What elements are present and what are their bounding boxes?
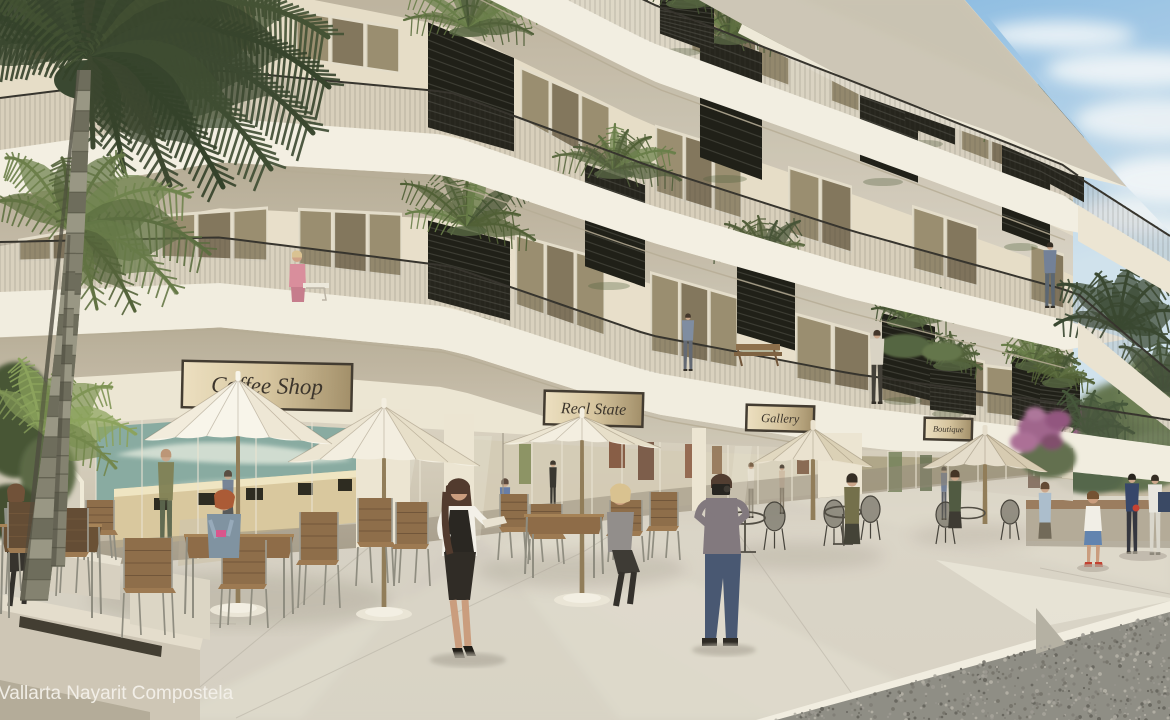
- svg-text:Vallarta Nayarit Compostela: Vallarta Nayarit Compostela: [0, 683, 234, 704]
